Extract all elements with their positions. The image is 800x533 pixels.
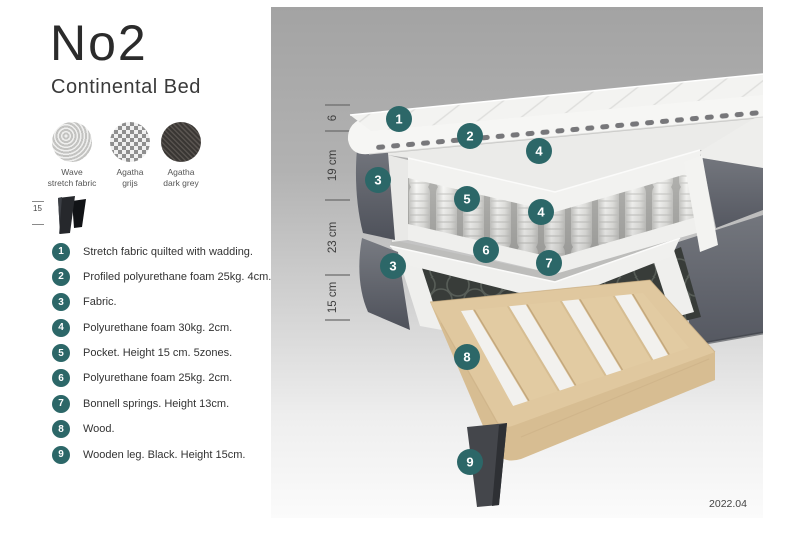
legend-badge: 1: [52, 243, 70, 261]
ruler-label: 19 cm: [327, 150, 339, 181]
version-label: 2022.04: [709, 498, 747, 510]
legend-text: Polyurethane foam 30kg. 2cm.: [83, 322, 232, 334]
leg-tick-top: [32, 201, 44, 202]
svg-text:2: 2: [466, 129, 473, 144]
callout-badge-3-upper: 3: [365, 167, 391, 193]
legend-text: Fabric.: [83, 296, 117, 308]
legend-list: 1 Stretch fabric quilted with wadding. 2…: [52, 242, 267, 471]
callout-badge-1: 1: [386, 106, 412, 132]
list-item: 3 Fabric.: [52, 293, 267, 312]
svg-text:4: 4: [537, 205, 545, 220]
list-item: 8 Wood.: [52, 420, 267, 439]
legend-badge: 7: [52, 395, 70, 413]
legend-badge: 4: [52, 319, 70, 337]
svg-text:6: 6: [482, 243, 489, 258]
list-item: 5 Pocket. Height 15 cm. 5zones.: [52, 344, 267, 363]
list-item: 1 Stretch fabric quilted with wadding.: [52, 242, 267, 261]
legend-badge: 3: [52, 293, 70, 311]
leg-tick-bottom: [32, 224, 44, 225]
callout-badge-2: 2: [457, 123, 483, 149]
legend-text: Pocket. Height 15 cm. 5zones.: [83, 347, 232, 359]
legend-badge: 9: [52, 446, 70, 464]
list-item: 4 Polyurethane foam 30kg. 2cm.: [52, 318, 267, 337]
callout-badge-3-lower: 3: [380, 253, 406, 279]
list-item: 9 Wooden leg. Black. Height 15cm.: [52, 445, 267, 464]
legend-badge: 6: [52, 369, 70, 387]
agatha-dark-grey-swatch-icon: [161, 122, 201, 162]
leg-thumbnail-icon: [48, 193, 98, 237]
svg-text:3: 3: [389, 259, 396, 274]
callout-badge-4-upper: 4: [526, 138, 552, 164]
callout-badge-8: 8: [454, 344, 480, 370]
callout-badge-4-lower: 4: [528, 199, 554, 225]
ruler-label: 23 cm: [327, 222, 339, 253]
ruler-label: 15 cm: [327, 282, 339, 313]
callout-badge-7: 7: [536, 250, 562, 276]
wave-fabric-swatch-icon: [52, 122, 92, 162]
list-item: 6 Polyurethane foam 25kg. 2cm.: [52, 369, 267, 388]
legend-badge: 5: [52, 344, 70, 362]
legend-text: Wood.: [83, 423, 115, 435]
swatch-label: Agatha dark grey: [146, 167, 216, 189]
bed-cutaway-illustration: 6 19 cm 23 cm 15 cm: [271, 7, 763, 518]
svg-text:8: 8: [463, 350, 470, 365]
svg-text:1: 1: [395, 112, 402, 127]
legend-text: Profiled polyurethane foam 25kg. 4cm.: [83, 271, 271, 283]
svg-text:5: 5: [463, 192, 470, 207]
page-title: No2: [50, 18, 148, 68]
svg-text:3: 3: [374, 173, 381, 188]
svg-text:4: 4: [535, 144, 543, 159]
callout-badge-5: 5: [454, 186, 480, 212]
legend-text: Polyurethane foam 25kg. 2cm.: [83, 372, 232, 384]
legend-text: Bonnell springs. Height 13cm.: [83, 398, 229, 410]
page-subtitle: Continental Bed: [51, 76, 201, 99]
ruler-label: 6: [327, 115, 339, 121]
legend-badge: 8: [52, 420, 70, 438]
leg-height-icon: 15: [30, 193, 110, 237]
callout-badge-9: 9: [457, 449, 483, 475]
legend-text: Stretch fabric quilted with wadding.: [83, 246, 253, 258]
legend-text: Wooden leg. Black. Height 15cm.: [83, 449, 245, 461]
info-panel: No2 Continental Bed Wave stretch fabric …: [0, 0, 271, 533]
callout-badge-6: 6: [473, 237, 499, 263]
list-item: 7 Bonnell springs. Height 13cm.: [52, 394, 267, 413]
agatha-grijs-swatch-icon: [110, 122, 150, 162]
list-item: 2 Profiled polyurethane foam 25kg. 4cm.: [52, 267, 267, 286]
bed-cutaway-svg: 6 19 cm 23 cm 15 cm: [271, 7, 763, 518]
legend-badge: 2: [52, 268, 70, 286]
leg-height-label: 15: [33, 204, 42, 213]
svg-text:7: 7: [545, 256, 552, 271]
svg-text:9: 9: [466, 455, 473, 470]
